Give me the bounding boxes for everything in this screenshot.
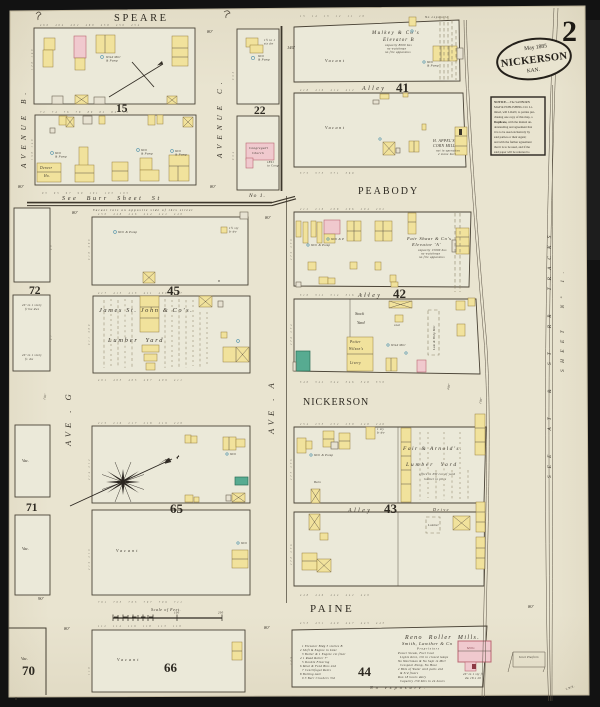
svg-text:701 703 705 707 709 711: 701 703 705 707 709 711 xyxy=(98,601,184,604)
svg-text:AVE . A: AVE . A xyxy=(266,379,276,435)
svg-text:NICKERSON: NICKERSON xyxy=(303,397,369,408)
svg-text:Lumber Yard: Lumber Yard xyxy=(107,337,164,344)
svg-text:fr dw: fr dw xyxy=(229,229,237,233)
svg-text:NOTICE.—The SANBORN: NOTICE.—The SANBORN xyxy=(494,100,531,104)
svg-text:72 74 76 78 80 82 84 86: 72 74 76 78 80 82 84 86 xyxy=(40,111,130,114)
svg-text:derstanding and agreement that: derstanding and agreement that xyxy=(494,125,532,129)
svg-text:Fair & Arnold's.: Fair & Arnold's. xyxy=(402,446,463,452)
svg-text:93 95 97 99 101 103 105: 93 95 97 99 101 103 105 xyxy=(42,192,130,195)
svg-text:212 210 208 206 204 202: 212 210 208 206 204 202 xyxy=(300,208,386,211)
svg-text:401 403 405 407 409 411: 401 403 405 407 409 411 xyxy=(98,379,184,382)
svg-text:Potter: Potter xyxy=(349,340,361,344)
svg-text:Stock Platform: Stock Platform xyxy=(519,656,539,659)
svg-text:no fire apparatus: no fire apparatus xyxy=(385,50,411,54)
svg-text:Stock: Stock xyxy=(355,311,364,316)
svg-text:Elevator 'A': Elevator 'A' xyxy=(411,242,441,247)
svg-text:Church: Church xyxy=(252,151,264,155)
svg-text:Well & P: Well & P xyxy=(331,237,344,241)
svg-text:and with the further agreement: and with the further agreement xyxy=(494,140,532,144)
svg-text:Vacant: Vacant xyxy=(116,548,139,553)
svg-text:112 114 116 118 113 110: 112 114 116 118 113 110 xyxy=(98,625,183,628)
svg-text:it is to be used exclusively b: it is to be used exclusively by xyxy=(494,130,531,134)
svg-text:dw 18 x 20: dw 18 x 20 xyxy=(465,676,481,680)
svg-text:lumber in piles: lumber in piles xyxy=(424,477,447,481)
svg-text:sty dw: sty dw xyxy=(264,41,273,45)
svg-text:fr. dw: fr. dw xyxy=(25,357,33,361)
svg-text:AVE . G: AVE . G xyxy=(63,390,73,447)
svg-text:40: 40 xyxy=(50,243,53,250)
svg-text:9 3 Burr Crushers 3rd: 9 3 Burr Crushers 3rd xyxy=(302,676,335,680)
svg-text:466 464 462 480 458 456: 466 464 462 480 458 456 454 xyxy=(40,24,141,27)
svg-text:PAINE: PAINE xyxy=(310,603,354,615)
svg-text:SEE AT & ST RR TRACKS: SEE AT & ST RR TRACKS xyxy=(547,228,553,478)
svg-text:Barn: Barn xyxy=(314,480,321,484)
svg-text:& Pump: & Pump xyxy=(258,57,270,61)
svg-text:140': 140' xyxy=(287,45,296,50)
svg-text:Alley: Alley xyxy=(361,86,386,92)
svg-text:Livery: Livery xyxy=(349,361,361,365)
svg-text:340 342 344 346 348 350: 340 342 344 346 348 350 xyxy=(300,381,386,384)
svg-text:311 309: 311 309 xyxy=(88,323,91,345)
svg-text:333: 333 xyxy=(232,70,235,80)
svg-text:Denver: Denver xyxy=(39,166,53,170)
svg-text:310 308: 310 308 xyxy=(88,238,91,260)
svg-text:Lum & Bldg Mat: Lum & Bldg Mat xyxy=(432,325,436,351)
svg-text:office in NW cor of yard: office in NW cor of yard xyxy=(419,472,455,476)
svg-text:310 312 314 316 318: 310 312 314 316 318 xyxy=(300,294,371,297)
svg-text:277 275: 277 275 xyxy=(290,458,293,480)
svg-text:375 373 371 369: 375 373 371 369 xyxy=(300,172,355,175)
svg-text:2 stone burr: 2 stone burr xyxy=(438,152,457,156)
svg-text:Wilson's: Wilson's xyxy=(349,347,364,351)
svg-text:Vac.: Vac. xyxy=(22,546,29,551)
svg-text:to Cong: to Cong xyxy=(267,163,279,167)
svg-text:450 448 446 444 442 440: 450 448 446 444 442 440 xyxy=(98,213,184,216)
svg-text:Capacity 150 bbls in 24 hours: Capacity 150 bbls in 24 hours xyxy=(400,679,445,683)
svg-text:AVENUE B.: AVENUE B. xyxy=(20,88,28,169)
svg-text:215 216 217 218 219 220: 215 216 217 218 219 220 xyxy=(98,422,184,425)
svg-text:417 415 413 411 409 407: 417 415 413 411 409 407 xyxy=(98,292,184,295)
svg-text:& Pump: & Pump xyxy=(141,151,153,155)
svg-text:fr'me dws: fr'me dws xyxy=(25,307,40,311)
svg-text:41: 41 xyxy=(50,333,53,340)
svg-text:Duplicate, with the mutual un-: Duplicate, with the mutual un- xyxy=(494,120,532,124)
svg-text:22: 22 xyxy=(254,105,266,117)
svg-text:150 148: 150 148 xyxy=(31,138,34,160)
svg-text:Congregat'l: Congregat'l xyxy=(249,146,268,150)
svg-text:42: 42 xyxy=(393,286,406,301)
svg-text:110: 110 xyxy=(88,665,91,675)
svg-text:Mills: Mills xyxy=(466,646,475,650)
svg-text:Fair Shaar & Co's: Fair Shaar & Co's xyxy=(406,236,452,241)
svg-text:254 253 252 250 248 246: 254 253 252 250 248 246 xyxy=(300,423,386,426)
svg-text:15 14 13 12 11 10: 15 14 13 12 11 10 xyxy=(300,15,366,18)
svg-text:279: 279 xyxy=(290,655,293,665)
svg-text:no fire apparatus: no fire apparatus xyxy=(419,255,445,259)
svg-text:2: 2 xyxy=(562,15,577,48)
svg-text:SHEET Nº 1.: SHEET Nº 1. xyxy=(560,266,566,372)
svg-text:Ho.: Ho. xyxy=(43,174,50,178)
svg-text:200: 200 xyxy=(218,611,224,615)
svg-text:H. APPEL'S: H. APPEL'S xyxy=(432,139,455,143)
svg-text:275 273: 275 273 xyxy=(290,238,293,260)
svg-text:coal: coal xyxy=(394,323,400,327)
svg-text:No 1.: No 1. xyxy=(248,193,266,199)
svg-text:Well & Pump: Well & Pump xyxy=(118,230,138,234)
svg-text:Well: Well xyxy=(230,452,236,456)
svg-text:said parties or their Agent;: said parties or their Agent; xyxy=(494,135,526,139)
svg-text:No exposure: No exposure xyxy=(424,15,449,19)
svg-text:& Pump: & Pump xyxy=(427,63,439,67)
svg-text:See Burr Sheet St: See Burr Sheet St xyxy=(62,195,162,202)
svg-text:71: 71 xyxy=(26,502,38,514)
svg-text:100: 100 xyxy=(174,611,180,615)
svg-text:MAP & PUBLISHING CO. Li-: MAP & PUBLISHING CO. Li- xyxy=(494,105,533,109)
svg-text:Yard: Yard xyxy=(357,320,366,325)
svg-text:B: B xyxy=(218,279,220,283)
svg-text:215 213: 215 213 xyxy=(88,548,91,570)
svg-text:PEABODY: PEABODY xyxy=(358,186,419,197)
svg-text:Well: Well xyxy=(241,541,247,545)
svg-text:Lumber: Lumber xyxy=(427,523,440,527)
svg-text:Alley: Alley xyxy=(347,508,372,514)
svg-text:45: 45 xyxy=(167,283,181,298)
svg-text:No exposure.: No exposure. xyxy=(369,685,428,690)
svg-text:170 168: 170 168 xyxy=(31,48,34,70)
svg-text:Well & Pump: Well & Pump xyxy=(314,453,334,457)
svg-text:fr dw: fr dw xyxy=(377,430,385,434)
svg-text:448 446 444 442 440: 448 446 444 442 440 xyxy=(300,594,371,597)
svg-text:65: 65 xyxy=(170,501,184,516)
svg-text:453 451 449 447 445 443: 453 451 449 447 445 443 xyxy=(300,622,386,625)
svg-text:72: 72 xyxy=(29,285,41,297)
svg-text:Well & Pump: Well & Pump xyxy=(311,243,331,247)
svg-text:Vacant: Vacant xyxy=(117,657,140,662)
svg-text:said paper will be returned to: said paper will be returned to xyxy=(494,150,530,154)
svg-text:276 274: 276 274 xyxy=(290,323,293,345)
svg-text:& Pump: & Pump xyxy=(175,152,187,156)
svg-text:CORN MILL: CORN MILL xyxy=(433,144,455,148)
svg-text:43: 43 xyxy=(384,501,398,516)
svg-text:SPEARE: SPEARE xyxy=(114,13,169,24)
svg-text:Vac.: Vac. xyxy=(22,458,29,463)
svg-text:334: 334 xyxy=(232,150,235,160)
svg-text:Vacant: Vacant xyxy=(325,58,345,63)
svg-text:& Pump: & Pump xyxy=(106,58,118,62)
svg-text:Wind Mill: Wind Mill xyxy=(391,343,406,347)
svg-text:418 416 414 412: 418 416 414 412 xyxy=(300,89,355,92)
svg-text:70: 70 xyxy=(22,663,35,678)
svg-text:Lumber Yard: Lumber Yard xyxy=(405,462,458,468)
svg-text:Vac.: Vac. xyxy=(21,656,28,661)
svg-text:Vacant: Vacant xyxy=(325,125,345,130)
svg-text:Vacant lots on opposite side o: Vacant lots on opposite side of this str… xyxy=(93,208,194,212)
svg-text:44: 44 xyxy=(358,664,372,679)
svg-text:Proprietors: Proprietors xyxy=(416,646,440,650)
svg-text:& Pump: & Pump xyxy=(55,154,67,158)
svg-text:214 212: 214 212 xyxy=(88,458,91,480)
svg-text:278 276: 278 276 xyxy=(290,543,293,565)
svg-text:Drive: Drive xyxy=(432,507,450,512)
svg-text:66: 66 xyxy=(164,660,178,675)
svg-text:AVENUE C.: AVENUE C. xyxy=(216,77,224,159)
